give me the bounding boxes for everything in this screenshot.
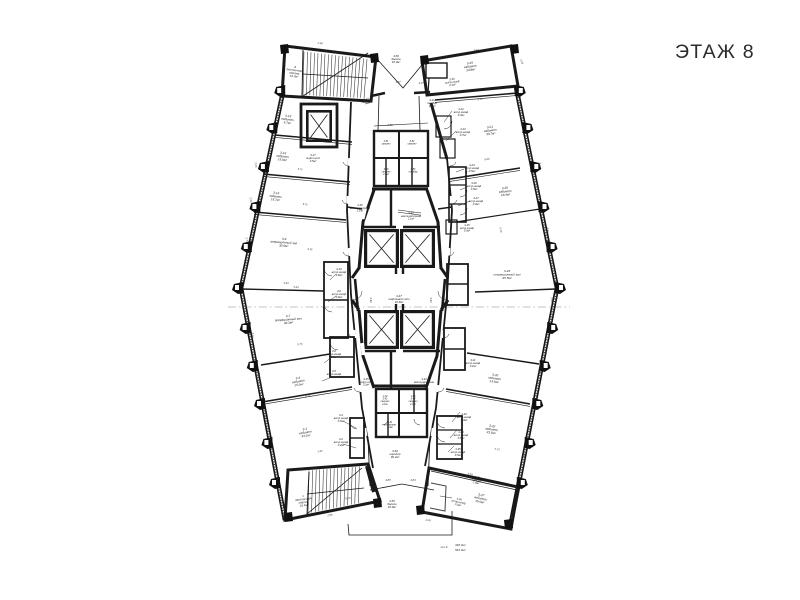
svg-text:5.83: 5.83 <box>283 281 289 285</box>
svg-text:3.85: 3.85 <box>385 478 391 482</box>
svg-text:2.77: 2.77 <box>245 236 250 243</box>
svg-text:2.92: 2.92 <box>369 296 373 303</box>
svg-text:2.96: 2.96 <box>522 451 527 458</box>
svg-text:5.83: 5.83 <box>293 285 299 289</box>
svg-text:2.50: 2.50 <box>386 123 393 127</box>
svg-text:2.98: 2.98 <box>546 226 551 233</box>
svg-text:348.0м²: 348.0м² <box>455 543 467 547</box>
svg-text:2.47: 2.47 <box>472 48 479 53</box>
svg-text:2.77: 2.77 <box>257 371 262 378</box>
svg-text:2.76: 2.76 <box>251 331 256 338</box>
svg-text:2.93: 2.93 <box>429 296 433 303</box>
svg-text:2.55: 2.55 <box>326 513 333 518</box>
svg-text:3.83: 3.83 <box>410 478 416 482</box>
svg-text:5.12: 5.12 <box>477 97 483 101</box>
svg-text:2.55: 2.55 <box>249 196 254 203</box>
svg-text:564.0м²: 564.0м² <box>455 548 467 552</box>
svg-text:2.55: 2.55 <box>254 161 259 168</box>
svg-text:2.98: 2.98 <box>550 296 555 303</box>
svg-text:3.17: 3.17 <box>418 81 424 85</box>
svg-text:5.69: 5.69 <box>484 157 490 162</box>
svg-text:3.97: 3.97 <box>395 80 401 84</box>
svg-text:ит.3: ит.3 <box>441 545 448 549</box>
svg-text:2.48: 2.48 <box>316 41 323 46</box>
